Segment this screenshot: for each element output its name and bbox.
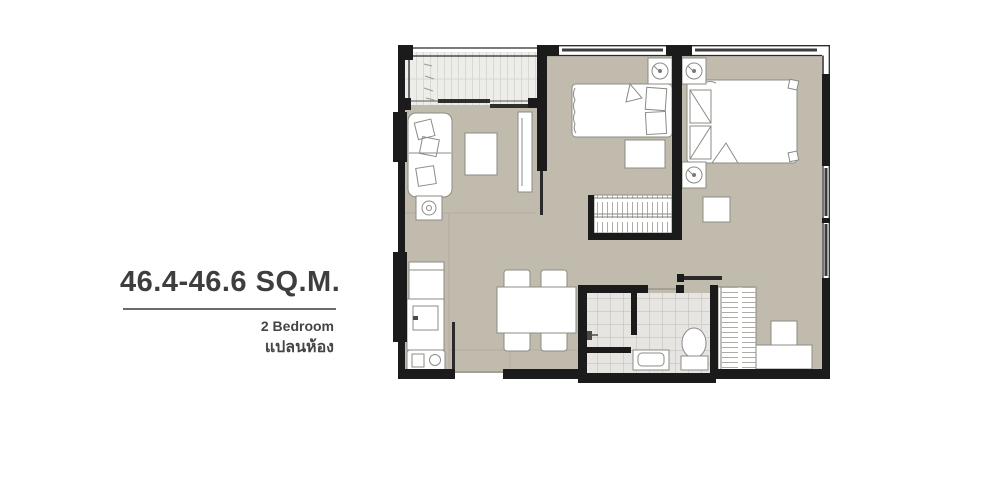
bedroom-2-dresser xyxy=(625,140,665,168)
ac-unit-icon xyxy=(682,58,706,84)
plan-info-block: 46.4-46.6 SQ.M. 2 Bedroom แปลนห้อง xyxy=(120,266,338,360)
fridge xyxy=(409,262,444,299)
floor-plan xyxy=(0,0,1000,500)
stove xyxy=(407,350,445,371)
thai-plan-label: แปลนห้อง xyxy=(120,335,334,360)
bedroom-2-door xyxy=(540,171,543,215)
page: 46.4-46.6 SQ.M. 2 Bedroom แปลนห้อง xyxy=(0,0,1000,500)
toilet xyxy=(681,328,708,370)
bedroom-2-bed xyxy=(572,84,672,137)
plan-sublabels: 2 Bedroom แปลนห้อง xyxy=(120,318,338,360)
coffee-table xyxy=(465,133,497,175)
sofa xyxy=(408,113,452,197)
bedroom-1-dresser xyxy=(703,197,730,222)
floor-lamp-icon xyxy=(416,196,442,220)
bathroom-vanity-sink xyxy=(633,350,669,370)
tv-console xyxy=(518,112,532,192)
divider-line xyxy=(123,308,336,310)
area-label: 46.4-46.6 SQ.M. xyxy=(120,266,338,299)
bedroom-1-bed xyxy=(687,79,799,163)
balcony xyxy=(398,48,540,110)
kitchen-counter-sink xyxy=(407,299,444,350)
ac-unit-icon xyxy=(648,58,672,84)
dining-table xyxy=(497,287,576,333)
bedroom-1-wardrobe xyxy=(718,287,756,371)
bedroom-2-wardrobe xyxy=(594,195,672,233)
ac-unit-icon xyxy=(682,162,706,188)
bedroom-count-label: 2 Bedroom xyxy=(120,318,334,334)
